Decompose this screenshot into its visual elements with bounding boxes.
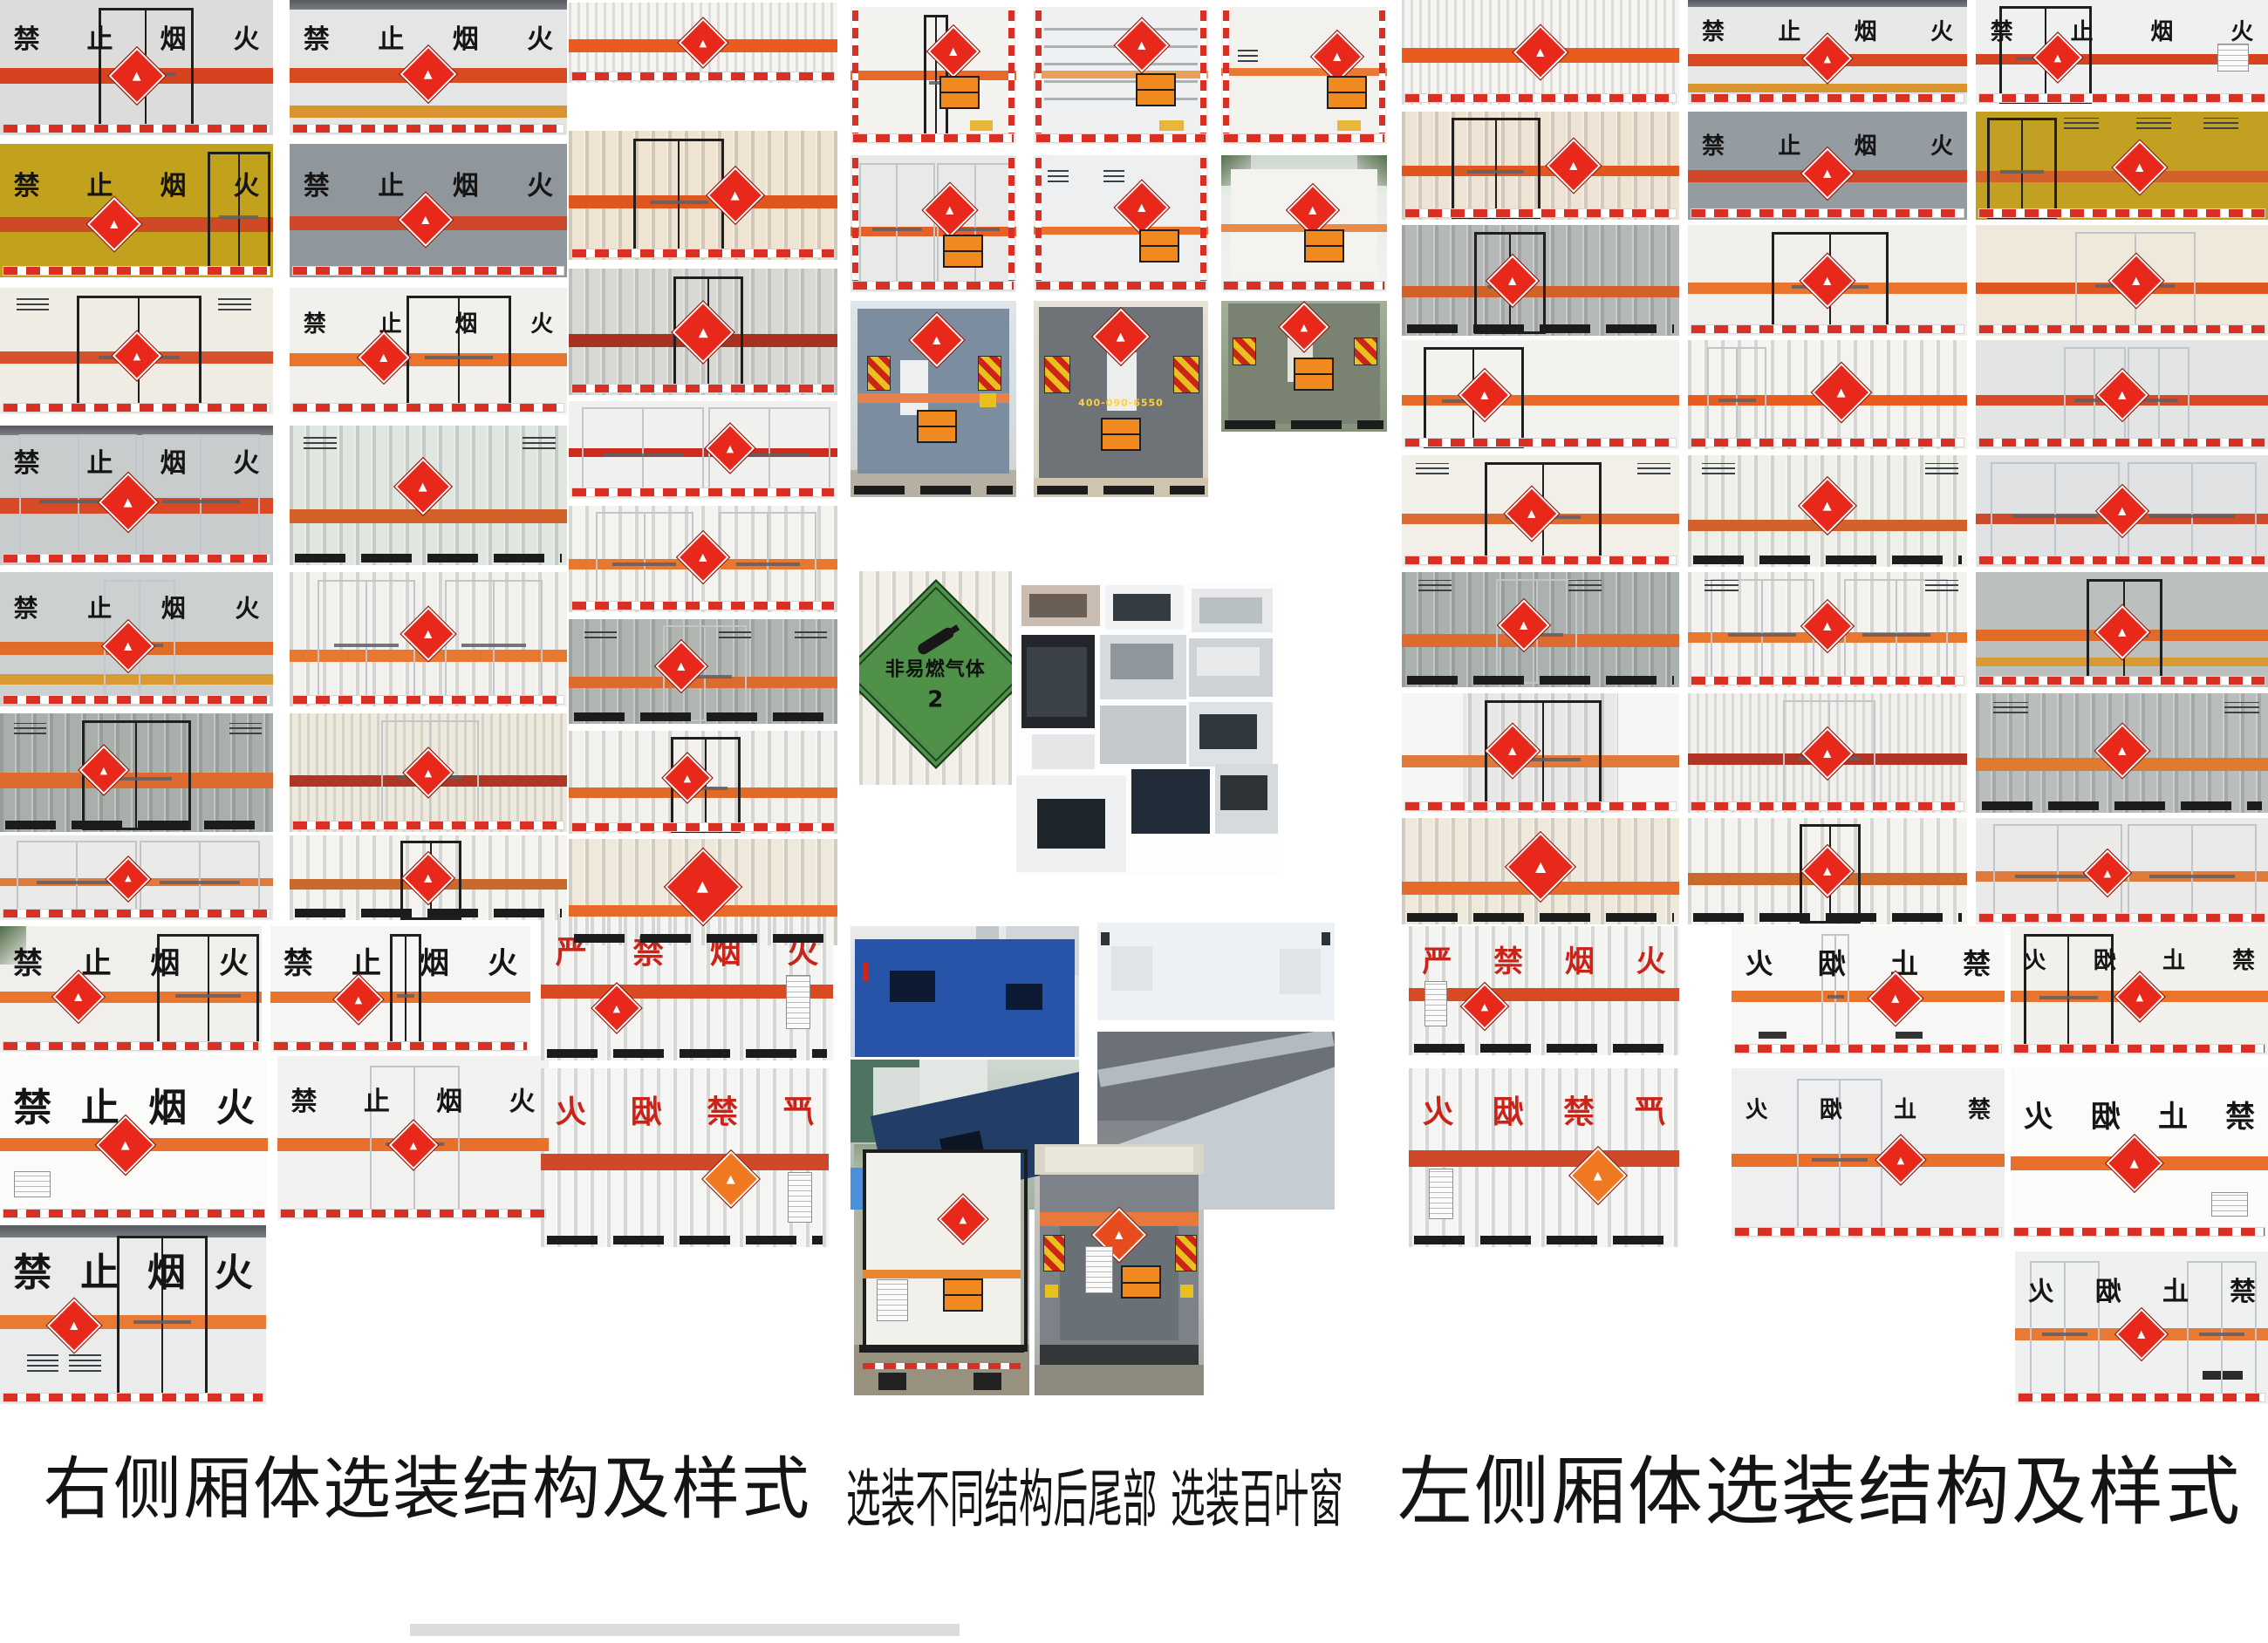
reflective-strip (1978, 93, 2265, 103)
reflective-strip (1734, 1044, 2002, 1053)
reflective-strip (571, 72, 835, 81)
reflective-strip (3, 1041, 259, 1051)
flame-glyph: ▲ (727, 443, 734, 453)
flame-glyph: ▲ (700, 38, 707, 48)
photo-detail (1100, 706, 1186, 764)
panel-char: 止 (352, 949, 381, 978)
flame-glyph: ▲ (697, 879, 708, 894)
flame-glyph: ▲ (1115, 1230, 1123, 1240)
louver-vent-icon (1048, 169, 1069, 183)
door-split (2191, 826, 2193, 919)
rear-bumper (1225, 420, 1383, 429)
panel-text: 禁止烟火 (13, 1254, 253, 1292)
info-plate (14, 1171, 51, 1197)
flammable-placard-diamond-icon: ▲ (1512, 24, 1568, 80)
flammable-placard-diamond-icon: ▲ (2114, 971, 2165, 1023)
photo-detail (1896, 1032, 1923, 1038)
reflective-strip (1223, 9, 1229, 143)
body-side-panel-photo: 禁止烟火▲ (0, 1056, 268, 1220)
panel-char: 禁 (1702, 21, 1725, 44)
panel-text: 禁止烟火 (291, 1089, 536, 1115)
flame-glyph: ▲ (1137, 202, 1145, 213)
door-frame (445, 580, 543, 702)
flammable-placard-diamond-icon: ▲ (1875, 1135, 1926, 1186)
louver-vent-icon (1238, 48, 1258, 62)
reflective-strip (571, 249, 835, 258)
panel-char: 火 (233, 451, 259, 477)
photo-detail (1322, 932, 1330, 945)
body-side-panel-photo: ▲ (569, 731, 837, 834)
placard-class-number: 2 (885, 686, 986, 712)
panel-char: 止 (1778, 135, 1800, 158)
body-side-panel-photo: ▲ (569, 269, 837, 395)
louver-vent-icon (719, 628, 751, 638)
rear-bumper (574, 934, 832, 943)
info-plate (1085, 1246, 1113, 1293)
photo-detail (863, 1270, 1021, 1278)
body-side-panel-photo: ▲ (290, 835, 567, 920)
louver-vent-icon (1702, 463, 1735, 474)
panel-char: 火 (556, 1097, 587, 1128)
photo-detail (980, 393, 996, 407)
panel-text: 严禁烟火 (1423, 947, 1666, 977)
service-phone-text: 400-090-6550 (1078, 398, 1164, 409)
reflective-strip (571, 384, 835, 393)
panel-char: 烟 (420, 949, 449, 978)
panel-char: 火 (527, 174, 553, 200)
flame-glyph: ▲ (424, 69, 433, 80)
door-frame (859, 163, 936, 287)
orange-un-placard (1139, 229, 1179, 262)
flame-glyph: ▲ (1823, 275, 1831, 285)
rear-bumper (574, 712, 832, 721)
panel-char: 严 (1423, 947, 1452, 977)
flame-glyph: ▲ (1536, 47, 1544, 58)
flame-glyph: ▲ (425, 768, 432, 778)
panel-char: 烟 (2095, 1279, 2121, 1306)
louver-vent-icon (2203, 118, 2238, 128)
reflective-strip (1404, 438, 1677, 447)
flame-glyph: ▲ (1333, 51, 1341, 62)
panel-char: 止 (2162, 950, 2185, 972)
panel-char: 烟 (1820, 1099, 1842, 1121)
rear-door-photo: ▲ (1221, 155, 1387, 292)
flame-glyph: ▲ (678, 661, 686, 672)
rear-door-photo: ▲ (850, 155, 1016, 292)
panel-char: 止 (81, 1089, 120, 1128)
flame-glyph: ▲ (424, 872, 432, 883)
flammable-placard-diamond-icon: ▲ (46, 1297, 103, 1353)
reflective-strip (1691, 676, 1964, 685)
door-split (2094, 349, 2095, 445)
body-side-panel-photo: ▲ (1688, 818, 1967, 924)
rear-bumper (547, 1049, 828, 1058)
panel-char: 止 (378, 27, 404, 53)
body-side-panel-photo: ▲ (290, 572, 567, 706)
body-side-panel-photo: 禁止烟火▲ (0, 426, 273, 565)
reflective-strip (292, 821, 564, 830)
door-split (896, 165, 898, 285)
panel-text: 火烟止禁 (2024, 1102, 2256, 1132)
panel-char: 禁 (14, 597, 38, 621)
info-plate (1429, 1169, 1453, 1219)
truck-rear-photo: ▲ (1221, 301, 1387, 432)
flammable-placard-diamond-icon: ▲ (1113, 17, 1170, 74)
body-side-panel-photo: ▲ (569, 3, 837, 83)
truck-rear-photo: ▲ (1035, 1144, 1204, 1395)
photo-detail (1006, 984, 1042, 1010)
hazard-stripe (290, 509, 567, 523)
flame-glyph: ▲ (111, 219, 119, 229)
warning-stripe-panel (867, 356, 891, 391)
reflective-strip (273, 1041, 528, 1051)
body-side-panel-photo: ▲ (1402, 0, 1679, 105)
reflective-strip (3, 266, 270, 276)
flame-glyph: ▲ (959, 1215, 966, 1224)
orange-un-placard (1101, 418, 1141, 451)
photo-detail (1113, 594, 1171, 620)
orange-un-placard (1327, 76, 1367, 109)
reflective-strip (852, 281, 1014, 290)
panel-char: 烟 (160, 27, 186, 53)
photo-detail (1040, 1345, 1199, 1365)
rear-bumper (1407, 676, 1673, 685)
truck-rear-photo: ▲ (854, 1144, 1029, 1395)
door-split (493, 582, 495, 700)
reflective-strip (1404, 801, 1677, 811)
panel-char: 禁 (304, 27, 330, 53)
body-side-panel-photo: ▲ (1688, 225, 1967, 336)
door-split (704, 627, 706, 719)
door-split (2054, 464, 2056, 562)
orange-un-placard (1136, 73, 1176, 106)
rear-bumper (1407, 324, 1673, 333)
caption-right-side: 右侧厢体选装结构及样式 (44, 1435, 811, 1532)
caption-louver-window: 选装百叶窗 (1171, 1448, 1343, 1539)
door-split (1761, 581, 1763, 682)
reflective-strip (1978, 556, 2265, 565)
photo-detail (863, 963, 869, 981)
panel-char: 禁 (14, 451, 40, 477)
flame-glyph: ▲ (1823, 866, 1831, 876)
rear-bumper (1982, 801, 2263, 810)
rear-bumper (1693, 556, 1961, 564)
panel-char: 止 (2071, 21, 2094, 44)
door-split (767, 514, 769, 607)
photo-detail (1618, 693, 1679, 813)
panel-char: 火 (527, 27, 553, 53)
flame-glyph: ▲ (1823, 747, 1831, 758)
body-side-panel-photo: 禁止烟火▲ (0, 926, 262, 1053)
panel-char: 火 (215, 1254, 253, 1292)
photo-detail (970, 120, 994, 132)
photo-detail (863, 1149, 1028, 1353)
door-frame (1711, 579, 1814, 684)
panel-char: 火 (1423, 1097, 1454, 1128)
photo-detail (1045, 1147, 1194, 1172)
photo-detail (1220, 775, 1267, 810)
panel-char: 烟 (1565, 947, 1595, 977)
panel-char: 禁 (304, 174, 330, 200)
rear-bumper (547, 1236, 823, 1244)
body-side-panel-photo: 禁止烟火▲ (0, 0, 273, 135)
panel-text: 火烟止禁 (1745, 950, 1991, 978)
flame-glyph: ▲ (946, 205, 953, 215)
warning-stripe-panel (1044, 356, 1070, 393)
container-body-photo: 火烟禁严▲ (541, 1068, 829, 1247)
door-frame (1452, 118, 1540, 218)
panel-char: 严 (1634, 1097, 1665, 1128)
photo-detail (859, 1345, 1024, 1353)
louver-vent-icon (1416, 463, 1449, 474)
flame-glyph: ▲ (1137, 40, 1145, 51)
caption-left-side: 左侧厢体选装结构及样式 (1397, 1430, 2242, 1539)
photo-detail (1111, 946, 1151, 992)
louver-vent-icon (1637, 463, 1670, 474)
reflective-strip (571, 601, 835, 610)
reflective-strip (1691, 438, 1964, 447)
warning-stripe-panel (978, 356, 1001, 391)
louver-vent-icon (795, 628, 827, 638)
panel-char: 禁 (13, 949, 43, 978)
body-side-panel-photo: ▲ (0, 288, 273, 414)
flammable-placard-diamond-icon: ▲ (399, 44, 458, 104)
rear-bumper (5, 821, 268, 829)
louver-vent-icon (218, 298, 251, 311)
panel-char: 火 (219, 949, 249, 978)
photo-detail (1337, 120, 1361, 132)
flame-glyph: ▲ (1509, 275, 1517, 285)
flammable-placard-diamond-icon: ▲ (393, 457, 453, 516)
panel-char: 止 (87, 27, 113, 53)
flame-glyph: ▲ (1823, 168, 1831, 179)
info-plate (877, 1279, 908, 1321)
reflective-strip (1404, 556, 1677, 565)
container-body-photo: 火烟禁严▲ (1409, 1068, 1679, 1247)
panel-char: 火 (1636, 947, 1665, 977)
reflective-strip (1978, 913, 2265, 923)
flame-glyph: ▲ (727, 1174, 735, 1185)
flame-glyph: ▲ (1570, 160, 1578, 171)
panel-char: 禁 (304, 313, 326, 336)
louver-vent-icon (1993, 702, 2028, 714)
reflective-strip (292, 403, 564, 412)
info-plate (2217, 44, 2249, 72)
panel-char: 禁 (13, 1254, 51, 1292)
flame-glyph: ▲ (1891, 993, 1899, 1004)
door-frame (719, 512, 816, 609)
reflective-strip (1978, 438, 2265, 447)
rear-bumper (1414, 1044, 1674, 1053)
door-split (2158, 349, 2160, 445)
hazard-stripe (1409, 988, 1679, 1001)
panel-char: 严 (782, 1097, 814, 1128)
panel-char: 禁 (1968, 1099, 1991, 1121)
flame-glyph: ▲ (379, 352, 387, 363)
panel-char: 烟 (436, 1089, 462, 1115)
panel-text: 禁止烟火 (304, 313, 553, 336)
photo-detail (1402, 693, 1463, 813)
orange-un-placard (943, 235, 983, 268)
panel-char: 烟 (1493, 1097, 1524, 1128)
door-frame (2128, 824, 2257, 921)
reflective-strip (1035, 281, 1206, 290)
panel-char: 禁 (1702, 135, 1725, 158)
gas-cylinder-icon (916, 625, 956, 656)
louver-vent-icon (1925, 463, 1958, 474)
body-side-panel-photo: 禁止烟火▲ (290, 0, 567, 135)
panel-char: 禁 (14, 27, 40, 53)
panel-text: 禁止烟火 (283, 949, 517, 978)
rear-door-photo: ▲ (1034, 155, 1208, 292)
body-side-panel-photo: ▲ (1976, 572, 2268, 687)
reflective-strip (3, 554, 270, 563)
flame-glyph: ▲ (1897, 1156, 1904, 1165)
panel-char: 火 (1930, 21, 1953, 44)
panel-char: 火 (233, 27, 259, 53)
body-side-panel-photo: 禁止烟火▲ (277, 1056, 549, 1220)
louver-vent-icon (523, 435, 556, 449)
flame-glyph: ▲ (2130, 1158, 2139, 1169)
photo-detail (1029, 594, 1087, 617)
panel-char: 烟 (161, 597, 186, 621)
flammable-placard-diamond-icon: ▲ (397, 192, 454, 249)
panel-char: 烟 (1818, 950, 1846, 978)
panel-char: 止 (87, 174, 113, 200)
rear-bumper (854, 486, 1013, 494)
panel-text: 火烟禁严 (556, 1097, 815, 1128)
photo-detail (1159, 120, 1184, 132)
reflective-strip (1691, 208, 1964, 218)
reflective-strip (1978, 676, 2265, 685)
door-frame (140, 841, 261, 918)
panel-char: 止 (80, 1254, 119, 1292)
reflective-strip (1691, 801, 1964, 811)
body-side-panel-photo: 火烟止禁▲ (1732, 1068, 2005, 1238)
flame-glyph: ▲ (2104, 869, 2111, 878)
hazard-stripe (1409, 1150, 1679, 1166)
reflective-strip (852, 9, 858, 143)
door-frame (1707, 347, 1766, 447)
photo-detail (1035, 1365, 1204, 1395)
door-split (644, 514, 646, 607)
panel-char: 烟 (453, 27, 479, 53)
flame-glyph: ▲ (409, 1140, 416, 1149)
hazard-stripe (1221, 68, 1387, 76)
placard-content: 非易燃气体2 (885, 635, 986, 712)
body-side-panel-photo: 禁止烟火▲ (0, 1225, 266, 1404)
body-side-panel-photo: 火烟止禁▲ (2011, 1068, 2268, 1238)
flame-glyph: ▲ (2133, 275, 2141, 285)
door-frame (318, 580, 415, 702)
louver-vent-icon (14, 723, 47, 735)
photo-detail (973, 1373, 1001, 1390)
body-side-panel-photo: ▲ (1402, 112, 1679, 220)
panel-text: 禁止烟火 (1991, 21, 2254, 44)
photo-detail (878, 1373, 906, 1390)
louver-panel-photo (1097, 923, 1335, 1020)
panel-char: 烟 (160, 174, 186, 200)
flame-glyph: ▲ (133, 70, 141, 81)
flammable-placard-diamond-icon: ▲ (1811, 362, 1873, 424)
door-split (1896, 581, 1897, 682)
body-side-panel-photo: 禁止烟火▲ (290, 288, 567, 414)
panel-text: 火烟禁严 (1423, 1097, 1666, 1128)
door-split (769, 409, 770, 495)
flame-glyph: ▲ (2135, 162, 2143, 173)
flame-glyph: ▲ (133, 351, 140, 361)
door-split (76, 842, 78, 917)
panel-char: 烟 (631, 1097, 662, 1128)
photo-detail (1037, 799, 1105, 849)
flame-glyph: ▲ (1481, 1001, 1488, 1011)
reflective-strip (2018, 1393, 2265, 1402)
panel-char: 烟 (453, 174, 479, 200)
hazard-stripe (1688, 84, 1967, 92)
door-split (199, 842, 201, 917)
flame-glyph: ▲ (2118, 506, 2126, 516)
louver-vent-icon (1704, 580, 1738, 591)
panel-char: 止 (87, 451, 113, 477)
door-split (1495, 120, 1497, 215)
flame-glyph: ▲ (74, 992, 82, 1002)
louver-vent-icon (2224, 702, 2259, 714)
placard-label: 非易燃气体 (885, 653, 986, 681)
reflective-strip (292, 124, 564, 133)
door-frame (1844, 579, 1948, 684)
louver-vent-icon (69, 1354, 101, 1373)
panel-char: 止 (87, 597, 112, 621)
reflective-strip (1008, 9, 1014, 143)
panel-char: 烟 (160, 451, 186, 477)
reflective-strip (1200, 9, 1206, 143)
reflective-strip (1379, 9, 1385, 143)
reflective-strip (1008, 157, 1014, 290)
orange-un-placard (917, 410, 957, 443)
flame-glyph: ▲ (613, 1003, 620, 1012)
orange-un-placard (939, 76, 980, 109)
bottom-scan-artifact (410, 1624, 960, 1636)
reflective-strip (1035, 9, 1042, 143)
reflective-strip (3, 1209, 265, 1218)
blue-container-photo (850, 926, 1079, 1057)
louver-vent-icon (304, 435, 337, 449)
body-side-panel-photo: ▲ (1976, 693, 2268, 813)
flame-glyph: ▲ (1528, 508, 1536, 519)
louver-vent-icon (17, 298, 50, 311)
orange-un-placard (1294, 358, 1334, 391)
flame-glyph: ▲ (2118, 746, 2126, 756)
non-flammable-gas-placard-icon: 非易燃气体2 (859, 579, 1012, 769)
flame-glyph: ▲ (949, 46, 957, 57)
reflective-strip (1200, 157, 1206, 290)
panel-text: 禁止烟火 (14, 451, 260, 477)
reflective-strip (1691, 93, 1964, 103)
panel-char: 火 (233, 174, 259, 200)
hazard-stripe (290, 106, 567, 118)
photo-detail (1180, 1285, 1194, 1297)
flammable-placard-diamond-icon: ▲ (2114, 1306, 2169, 1360)
flammable-placard-diamond-icon: ▲ (1546, 137, 1602, 194)
info-plate (1424, 981, 1447, 1026)
container-body-photo: 严禁烟火▲ (1409, 926, 1679, 1055)
panel-char: 止 (364, 1089, 390, 1115)
panel-char: 止 (82, 949, 112, 978)
flame-glyph: ▲ (1117, 331, 1125, 342)
flame-glyph: ▲ (731, 190, 740, 201)
flame-glyph: ▲ (125, 875, 132, 883)
panel-char: 禁 (2225, 1102, 2255, 1132)
